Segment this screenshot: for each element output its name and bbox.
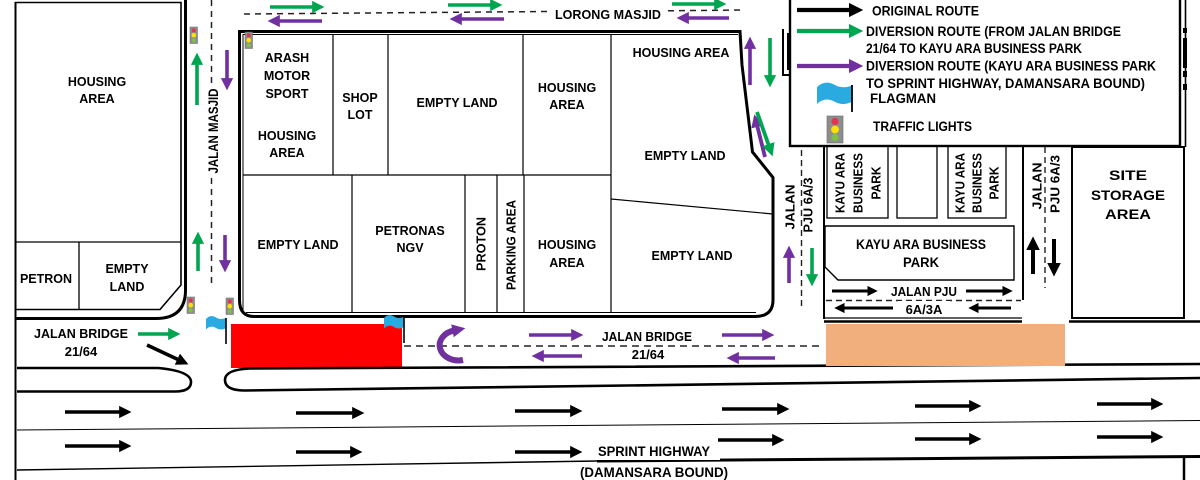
svg-text:HOUSING: HOUSING xyxy=(68,75,126,89)
svg-text:JALAN: JALAN xyxy=(1031,163,1045,210)
svg-text:PETRONAS: PETRONAS xyxy=(375,224,444,238)
svg-text:LAND: LAND xyxy=(110,280,145,294)
svg-text:(DAMANSARA BOUND): (DAMANSARA BOUND) xyxy=(580,465,728,480)
svg-text:JALAN: JALAN xyxy=(784,185,798,230)
svg-text:TRAFFIC LIGHTS: TRAFFIC LIGHTS xyxy=(873,119,972,134)
svg-text:BUSINESS: BUSINESS xyxy=(971,153,985,213)
svg-text:SHOP: SHOP xyxy=(342,91,377,105)
svg-text:SITE: SITE xyxy=(1109,168,1147,183)
svg-text:AREA: AREA xyxy=(269,146,304,160)
svg-text:PROTON: PROTON xyxy=(475,217,489,271)
svg-text:STORAGE: STORAGE xyxy=(1091,188,1165,203)
svg-text:SPORT: SPORT xyxy=(265,87,308,101)
svg-text:KAYU ARA BUSINESS: KAYU ARA BUSINESS xyxy=(856,237,986,252)
svg-text:SPRINT HIGHWAY: SPRINT HIGHWAY xyxy=(598,444,710,459)
svg-text:21/64: 21/64 xyxy=(65,344,98,359)
svg-text:EMPTY: EMPTY xyxy=(105,262,149,276)
svg-text:21/64 TO KAYU ARA BUSINESS PAR: 21/64 TO KAYU ARA BUSINESS PARK xyxy=(866,41,1082,56)
svg-text:DIVERSION ROUTE (FROM JALAN BR: DIVERSION ROUTE (FROM JALAN BRIDGE xyxy=(866,24,1121,39)
svg-text:NGV: NGV xyxy=(396,241,424,255)
svg-text:JALAN BRIDGE: JALAN BRIDGE xyxy=(602,329,692,344)
svg-text:EMPTY LAND: EMPTY LAND xyxy=(644,149,725,163)
svg-text:JALAN PJU: JALAN PJU xyxy=(891,284,957,299)
svg-text:AREA: AREA xyxy=(549,98,584,112)
svg-text:ORIGINAL ROUTE: ORIGINAL ROUTE xyxy=(872,4,979,19)
svg-text:BUSINESS: BUSINESS xyxy=(852,153,866,213)
svg-text:KAYU ARA: KAYU ARA xyxy=(954,153,968,213)
svg-text:LORONG MASJID: LORONG MASJID xyxy=(555,7,661,22)
svg-text:PARK: PARK xyxy=(988,167,1002,200)
svg-text:KAYU ARA: KAYU ARA xyxy=(834,153,848,213)
svg-text:JALAN MASJID: JALAN MASJID xyxy=(205,89,221,174)
svg-text:HOUSING AREA: HOUSING AREA xyxy=(633,46,730,60)
svg-text:PARK: PARK xyxy=(903,255,939,270)
svg-text:LOT: LOT xyxy=(348,108,373,122)
svg-text:AREA: AREA xyxy=(549,256,584,270)
svg-text:EMPTY LAND: EMPTY LAND xyxy=(651,249,732,263)
svg-text:PJU 6A/3: PJU 6A/3 xyxy=(1049,155,1063,213)
svg-text:MOTOR: MOTOR xyxy=(264,69,310,83)
svg-text:PJU 6A/3: PJU 6A/3 xyxy=(802,177,816,232)
svg-text:HOUSING: HOUSING xyxy=(258,129,316,143)
svg-text:AREA: AREA xyxy=(1105,207,1151,222)
svg-text:JALAN BRIDGE: JALAN BRIDGE xyxy=(34,326,128,341)
svg-text:21/64: 21/64 xyxy=(632,347,665,362)
svg-text:AREA: AREA xyxy=(79,92,114,106)
svg-text:EMPTY LAND: EMPTY LAND xyxy=(257,238,338,252)
svg-text:PARKING AREA: PARKING AREA xyxy=(505,200,519,290)
svg-text:TO SPRINT HIGHWAY, DAMANSARA B: TO SPRINT HIGHWAY, DAMANSARA BOUND) xyxy=(866,76,1145,91)
svg-text:EMPTY LAND: EMPTY LAND xyxy=(416,96,497,110)
svg-text:DIVERSION ROUTE (KAYU ARA BUSI: DIVERSION ROUTE (KAYU ARA BUSINESS PARK xyxy=(866,59,1156,74)
svg-text:FLAGMAN: FLAGMAN xyxy=(870,91,936,106)
svg-text:HOUSING: HOUSING xyxy=(538,238,596,252)
svg-text:PARK: PARK xyxy=(870,167,884,200)
svg-text:6A/3A: 6A/3A xyxy=(906,302,943,317)
svg-text:HOUSING: HOUSING xyxy=(538,81,596,95)
svg-text:PETRON: PETRON xyxy=(20,272,72,286)
svg-text:ARASH: ARASH xyxy=(265,51,309,65)
